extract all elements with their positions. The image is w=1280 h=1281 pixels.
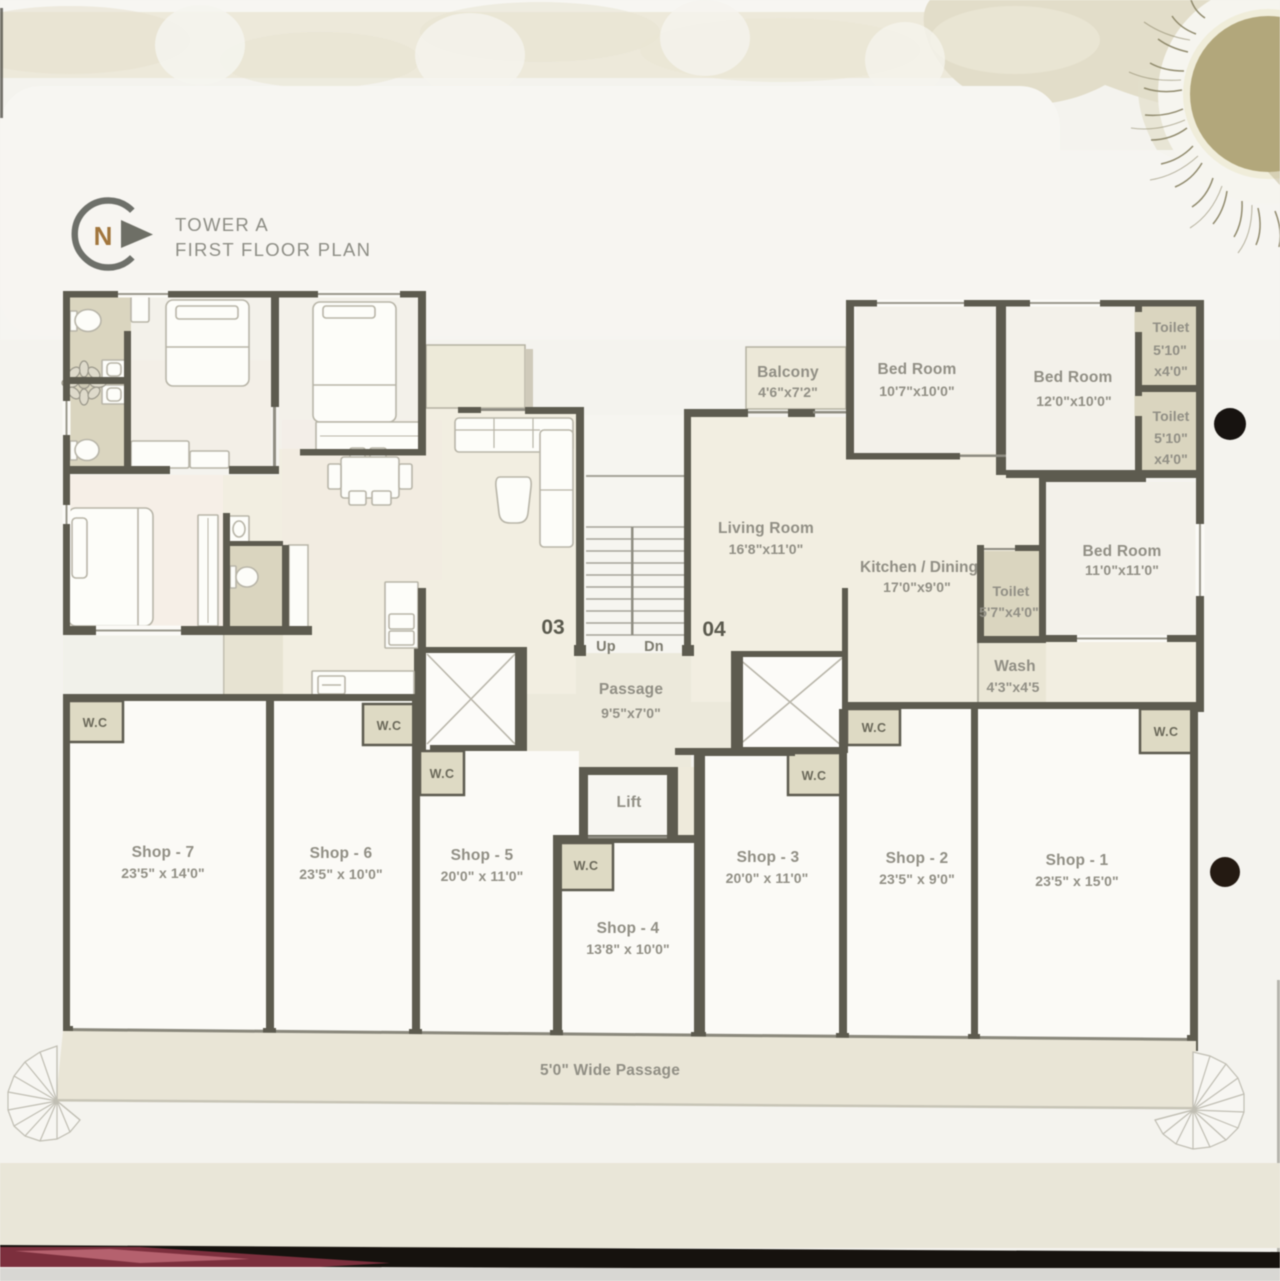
svg-text:Shop - 6: Shop - 6 xyxy=(310,845,373,862)
svg-text:9'5"x7'0": 9'5"x7'0" xyxy=(601,705,661,721)
svg-text:Toilet: Toilet xyxy=(993,583,1030,599)
svg-text:5'10": 5'10" xyxy=(1153,342,1187,358)
svg-text:Wash: Wash xyxy=(994,658,1036,675)
svg-text:Bed Room: Bed Room xyxy=(1082,543,1161,560)
svg-text:Shop - 3: Shop - 3 xyxy=(737,849,800,866)
svg-text:23'5" x 15'0": 23'5" x 15'0" xyxy=(1035,873,1119,889)
svg-text:x4'0": x4'0" xyxy=(1154,363,1188,379)
svg-text:5'10": 5'10" xyxy=(1154,430,1188,446)
svg-text:20'0" x 11'0": 20'0" x 11'0" xyxy=(726,870,809,886)
svg-text:13'8" x 10'0": 13'8" x 10'0" xyxy=(586,941,670,957)
svg-text:Kitchen / Dining: Kitchen / Dining xyxy=(860,559,978,576)
svg-text:03: 03 xyxy=(541,616,564,639)
svg-text:x4'0": x4'0" xyxy=(1154,451,1188,467)
svg-text:Shop - 2: Shop - 2 xyxy=(886,850,949,867)
svg-text:16'8"x11'0": 16'8"x11'0" xyxy=(729,541,804,557)
svg-text:Toilet: Toilet xyxy=(1153,408,1190,424)
svg-text:Shop - 5: Shop - 5 xyxy=(451,847,514,864)
svg-text:04: 04 xyxy=(702,618,726,641)
svg-text:11'0"x11'0": 11'0"x11'0" xyxy=(1085,562,1159,578)
svg-text:5'0" Wide Passage: 5'0" Wide Passage xyxy=(540,1062,680,1079)
svg-text:Balcony: Balcony xyxy=(757,364,819,381)
svg-text:Up: Up xyxy=(596,639,616,655)
svg-text:4'3"x4'5: 4'3"x4'5 xyxy=(986,679,1039,695)
svg-text:Living Room: Living Room xyxy=(718,520,814,537)
svg-text:23'5" x 14'0": 23'5" x 14'0" xyxy=(121,865,205,881)
svg-text:W.C: W.C xyxy=(802,769,827,783)
svg-text:Bed Room: Bed Room xyxy=(1033,369,1112,386)
svg-text:Passage: Passage xyxy=(599,681,663,698)
svg-text:Dn: Dn xyxy=(644,639,664,655)
svg-text:Shop - 7: Shop - 7 xyxy=(132,844,195,861)
svg-text:W.C: W.C xyxy=(377,719,402,733)
svg-text:TOWER A: TOWER A xyxy=(175,214,269,235)
svg-text:Bed Room: Bed Room xyxy=(877,361,956,378)
svg-text:Lift: Lift xyxy=(617,794,642,811)
svg-text:23'5" x 10'0": 23'5" x 10'0" xyxy=(299,866,383,882)
svg-text:W.C: W.C xyxy=(83,716,108,730)
svg-text:W.C: W.C xyxy=(862,721,887,735)
svg-text:Toilet: Toilet xyxy=(1153,319,1190,335)
svg-text:W.C: W.C xyxy=(574,859,599,873)
svg-text:Shop - 1: Shop - 1 xyxy=(1046,852,1109,869)
svg-text:N: N xyxy=(94,221,113,251)
svg-text:W.C: W.C xyxy=(1154,725,1179,739)
svg-text:17'0"x9'0": 17'0"x9'0" xyxy=(883,579,951,595)
svg-text:5'7"x4'0": 5'7"x4'0" xyxy=(979,604,1039,620)
svg-text:23'5" x 9'0": 23'5" x 9'0" xyxy=(879,871,955,887)
svg-text:10'7"x10'0": 10'7"x10'0" xyxy=(879,383,955,399)
svg-text:12'0"x10'0": 12'0"x10'0" xyxy=(1036,393,1112,409)
svg-text:4'6"x7'2": 4'6"x7'2" xyxy=(758,384,818,400)
svg-text:Shop - 4: Shop - 4 xyxy=(597,920,660,937)
svg-text:FIRST FLOOR PLAN: FIRST FLOOR PLAN xyxy=(175,239,371,260)
svg-text:W.C: W.C xyxy=(430,767,455,781)
svg-text:20'0" x 11'0": 20'0" x 11'0" xyxy=(441,868,524,884)
